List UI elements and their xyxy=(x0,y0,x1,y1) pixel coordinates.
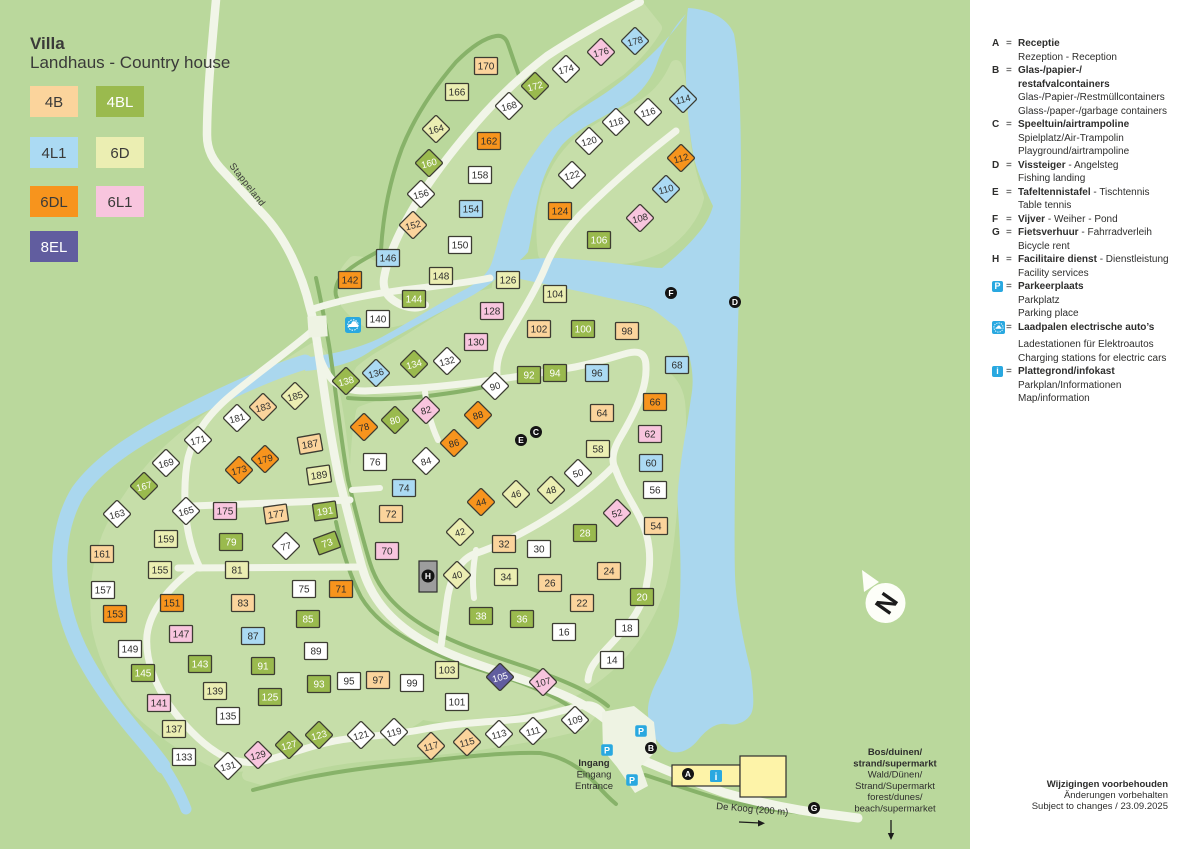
svg-text:125: 125 xyxy=(262,693,279,704)
svg-text:P: P xyxy=(638,726,644,736)
svg-text:32: 32 xyxy=(498,540,510,551)
svg-text:139: 139 xyxy=(207,687,224,698)
svg-text:F: F xyxy=(668,288,673,298)
svg-text:30: 30 xyxy=(533,545,545,556)
svg-text:58: 58 xyxy=(592,445,604,456)
svg-text:75: 75 xyxy=(298,585,310,596)
svg-text:28: 28 xyxy=(579,529,591,540)
svg-text:145: 145 xyxy=(135,669,152,680)
svg-text:106: 106 xyxy=(591,236,608,247)
svg-text:E: E xyxy=(518,435,524,445)
svg-text:137: 137 xyxy=(166,725,183,736)
svg-text:159: 159 xyxy=(158,535,175,546)
svg-text:95: 95 xyxy=(343,677,355,688)
svg-text:157: 157 xyxy=(95,586,112,597)
svg-text:strand/supermarkt: strand/supermarkt xyxy=(853,758,937,769)
svg-text:101: 101 xyxy=(449,698,466,709)
svg-text:81: 81 xyxy=(231,566,243,577)
svg-text:Landhaus - Country house: Landhaus - Country house xyxy=(30,53,230,72)
svg-text:4BL: 4BL xyxy=(107,94,134,111)
svg-text:154: 154 xyxy=(463,205,480,216)
svg-text:forest/dunes/: forest/dunes/ xyxy=(868,792,923,803)
svg-text:146: 146 xyxy=(380,254,397,265)
svg-text:64: 64 xyxy=(596,409,608,420)
svg-text:141: 141 xyxy=(151,699,168,710)
svg-text:85: 85 xyxy=(302,615,314,626)
svg-text:126: 126 xyxy=(500,276,517,287)
svg-text:128: 128 xyxy=(484,307,501,318)
svg-text:158: 158 xyxy=(472,171,489,182)
svg-text:104: 104 xyxy=(547,290,564,301)
svg-text:153: 153 xyxy=(107,610,124,621)
svg-text:16: 16 xyxy=(558,628,570,639)
svg-text:79: 79 xyxy=(225,538,237,549)
svg-text:68: 68 xyxy=(671,361,683,372)
svg-text:191: 191 xyxy=(316,505,334,518)
svg-text:34: 34 xyxy=(500,573,512,584)
svg-text:135: 135 xyxy=(220,712,237,723)
svg-text:8EL: 8EL xyxy=(41,239,68,256)
svg-text:144: 144 xyxy=(406,295,423,306)
svg-text:66: 66 xyxy=(649,398,661,409)
svg-text:124: 124 xyxy=(552,207,569,218)
svg-text:92: 92 xyxy=(523,371,535,382)
svg-text:Wald/Dünen/: Wald/Dünen/ xyxy=(868,770,923,781)
svg-text:C: C xyxy=(533,427,539,437)
svg-text:161: 161 xyxy=(94,550,111,561)
svg-text:91: 91 xyxy=(257,662,269,673)
svg-text:G: G xyxy=(811,803,818,813)
svg-text:98: 98 xyxy=(621,327,633,338)
svg-text:6DL: 6DL xyxy=(40,194,68,211)
svg-text:24: 24 xyxy=(603,567,615,578)
svg-text:6L1: 6L1 xyxy=(107,194,132,211)
svg-text:177: 177 xyxy=(267,508,285,521)
svg-text:148: 148 xyxy=(433,272,450,283)
svg-text:97: 97 xyxy=(372,676,384,687)
svg-text:14: 14 xyxy=(606,656,618,667)
svg-text:151: 151 xyxy=(164,599,181,610)
svg-text:20: 20 xyxy=(636,593,648,604)
svg-text:140: 140 xyxy=(370,315,387,326)
svg-text:Eingang: Eingang xyxy=(577,770,612,781)
svg-text:189: 189 xyxy=(310,469,328,482)
svg-text:170: 170 xyxy=(478,62,495,73)
svg-text:87: 87 xyxy=(247,632,259,643)
svg-text:93: 93 xyxy=(313,680,325,691)
svg-text:Entrance: Entrance xyxy=(575,781,613,792)
svg-text:71: 71 xyxy=(335,585,347,596)
svg-text:155: 155 xyxy=(152,566,169,577)
svg-text:Bos/duinen/: Bos/duinen/ xyxy=(868,747,923,758)
svg-text:P: P xyxy=(629,775,635,785)
svg-text:147: 147 xyxy=(173,630,190,641)
svg-text:149: 149 xyxy=(122,645,139,656)
svg-text:99: 99 xyxy=(406,679,418,690)
svg-text:A: A xyxy=(685,769,691,779)
svg-text:100: 100 xyxy=(575,325,592,336)
svg-text:94: 94 xyxy=(549,369,561,380)
svg-text:143: 143 xyxy=(192,660,209,671)
svg-text:150: 150 xyxy=(452,241,469,252)
svg-text:142: 142 xyxy=(342,276,359,287)
svg-text:D: D xyxy=(732,297,738,307)
svg-text:56: 56 xyxy=(649,486,661,497)
svg-text:102: 102 xyxy=(531,325,548,336)
svg-text:166: 166 xyxy=(449,88,466,99)
svg-text:6D: 6D xyxy=(110,145,129,162)
svg-text:36: 36 xyxy=(516,615,528,626)
svg-text:22: 22 xyxy=(576,599,588,610)
svg-text:i: i xyxy=(715,772,718,783)
svg-text:133: 133 xyxy=(176,753,193,764)
svg-text:4B: 4B xyxy=(45,94,63,111)
svg-text:54: 54 xyxy=(650,522,662,533)
svg-text:96: 96 xyxy=(591,369,603,380)
svg-text:103: 103 xyxy=(439,666,456,677)
svg-text:Ingang: Ingang xyxy=(578,758,609,769)
svg-text:76: 76 xyxy=(369,458,381,469)
svg-text:72: 72 xyxy=(385,510,397,521)
svg-text:B: B xyxy=(648,743,654,753)
svg-text:74: 74 xyxy=(398,484,410,495)
svg-text:4L1: 4L1 xyxy=(41,145,66,162)
svg-text:175: 175 xyxy=(217,507,234,518)
svg-text:162: 162 xyxy=(481,137,498,148)
svg-text:P: P xyxy=(604,745,610,755)
svg-text:83: 83 xyxy=(237,599,249,610)
svg-text:Villa: Villa xyxy=(30,34,65,53)
svg-text:89: 89 xyxy=(310,647,322,658)
svg-text:70: 70 xyxy=(381,547,393,558)
svg-text:Strand/Supermarkt: Strand/Supermarkt xyxy=(855,781,935,792)
svg-text:26: 26 xyxy=(544,579,556,590)
svg-text:130: 130 xyxy=(468,338,485,349)
svg-text:beach/supermarket: beach/supermarket xyxy=(854,804,936,815)
svg-text:H: H xyxy=(425,571,431,581)
svg-text:18: 18 xyxy=(621,624,633,635)
svg-text:62: 62 xyxy=(644,430,656,441)
svg-text:38: 38 xyxy=(475,612,487,623)
svg-text:60: 60 xyxy=(645,459,657,470)
